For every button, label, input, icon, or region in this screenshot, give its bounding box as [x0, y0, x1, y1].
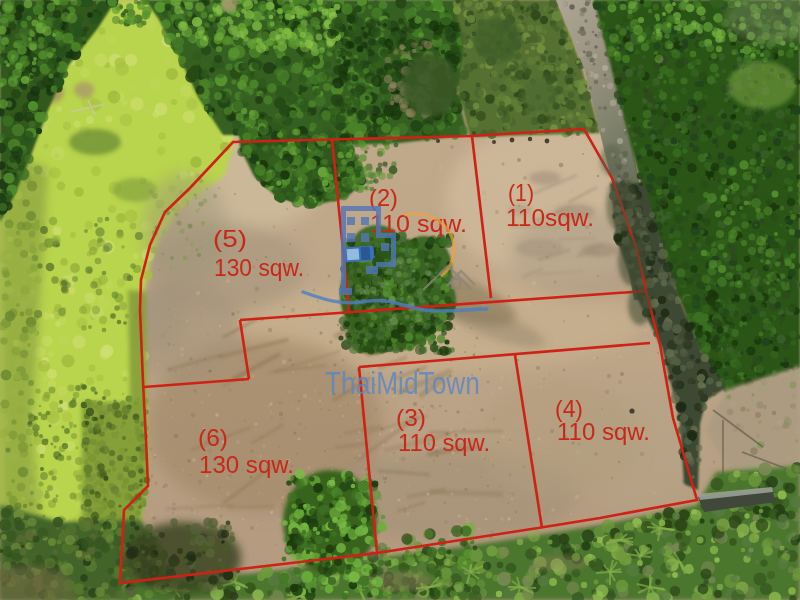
svg-text:(6): (6) — [198, 424, 228, 451]
svg-text:ThaiMidTown: ThaiMidTown — [325, 366, 480, 401]
svg-text:(3): (3) — [396, 404, 426, 431]
svg-text:130 sqw.: 130 sqw. — [214, 254, 304, 281]
svg-text:110 sqw.: 110 sqw. — [557, 418, 650, 445]
svg-text:110sqw.: 110sqw. — [506, 204, 594, 231]
svg-text:(5): (5) — [213, 225, 247, 252]
svg-text:110 sqw.: 110 sqw. — [398, 429, 490, 456]
svg-text:130 sqw.: 130 sqw. — [199, 451, 294, 478]
svg-text:(1): (1) — [508, 179, 534, 206]
